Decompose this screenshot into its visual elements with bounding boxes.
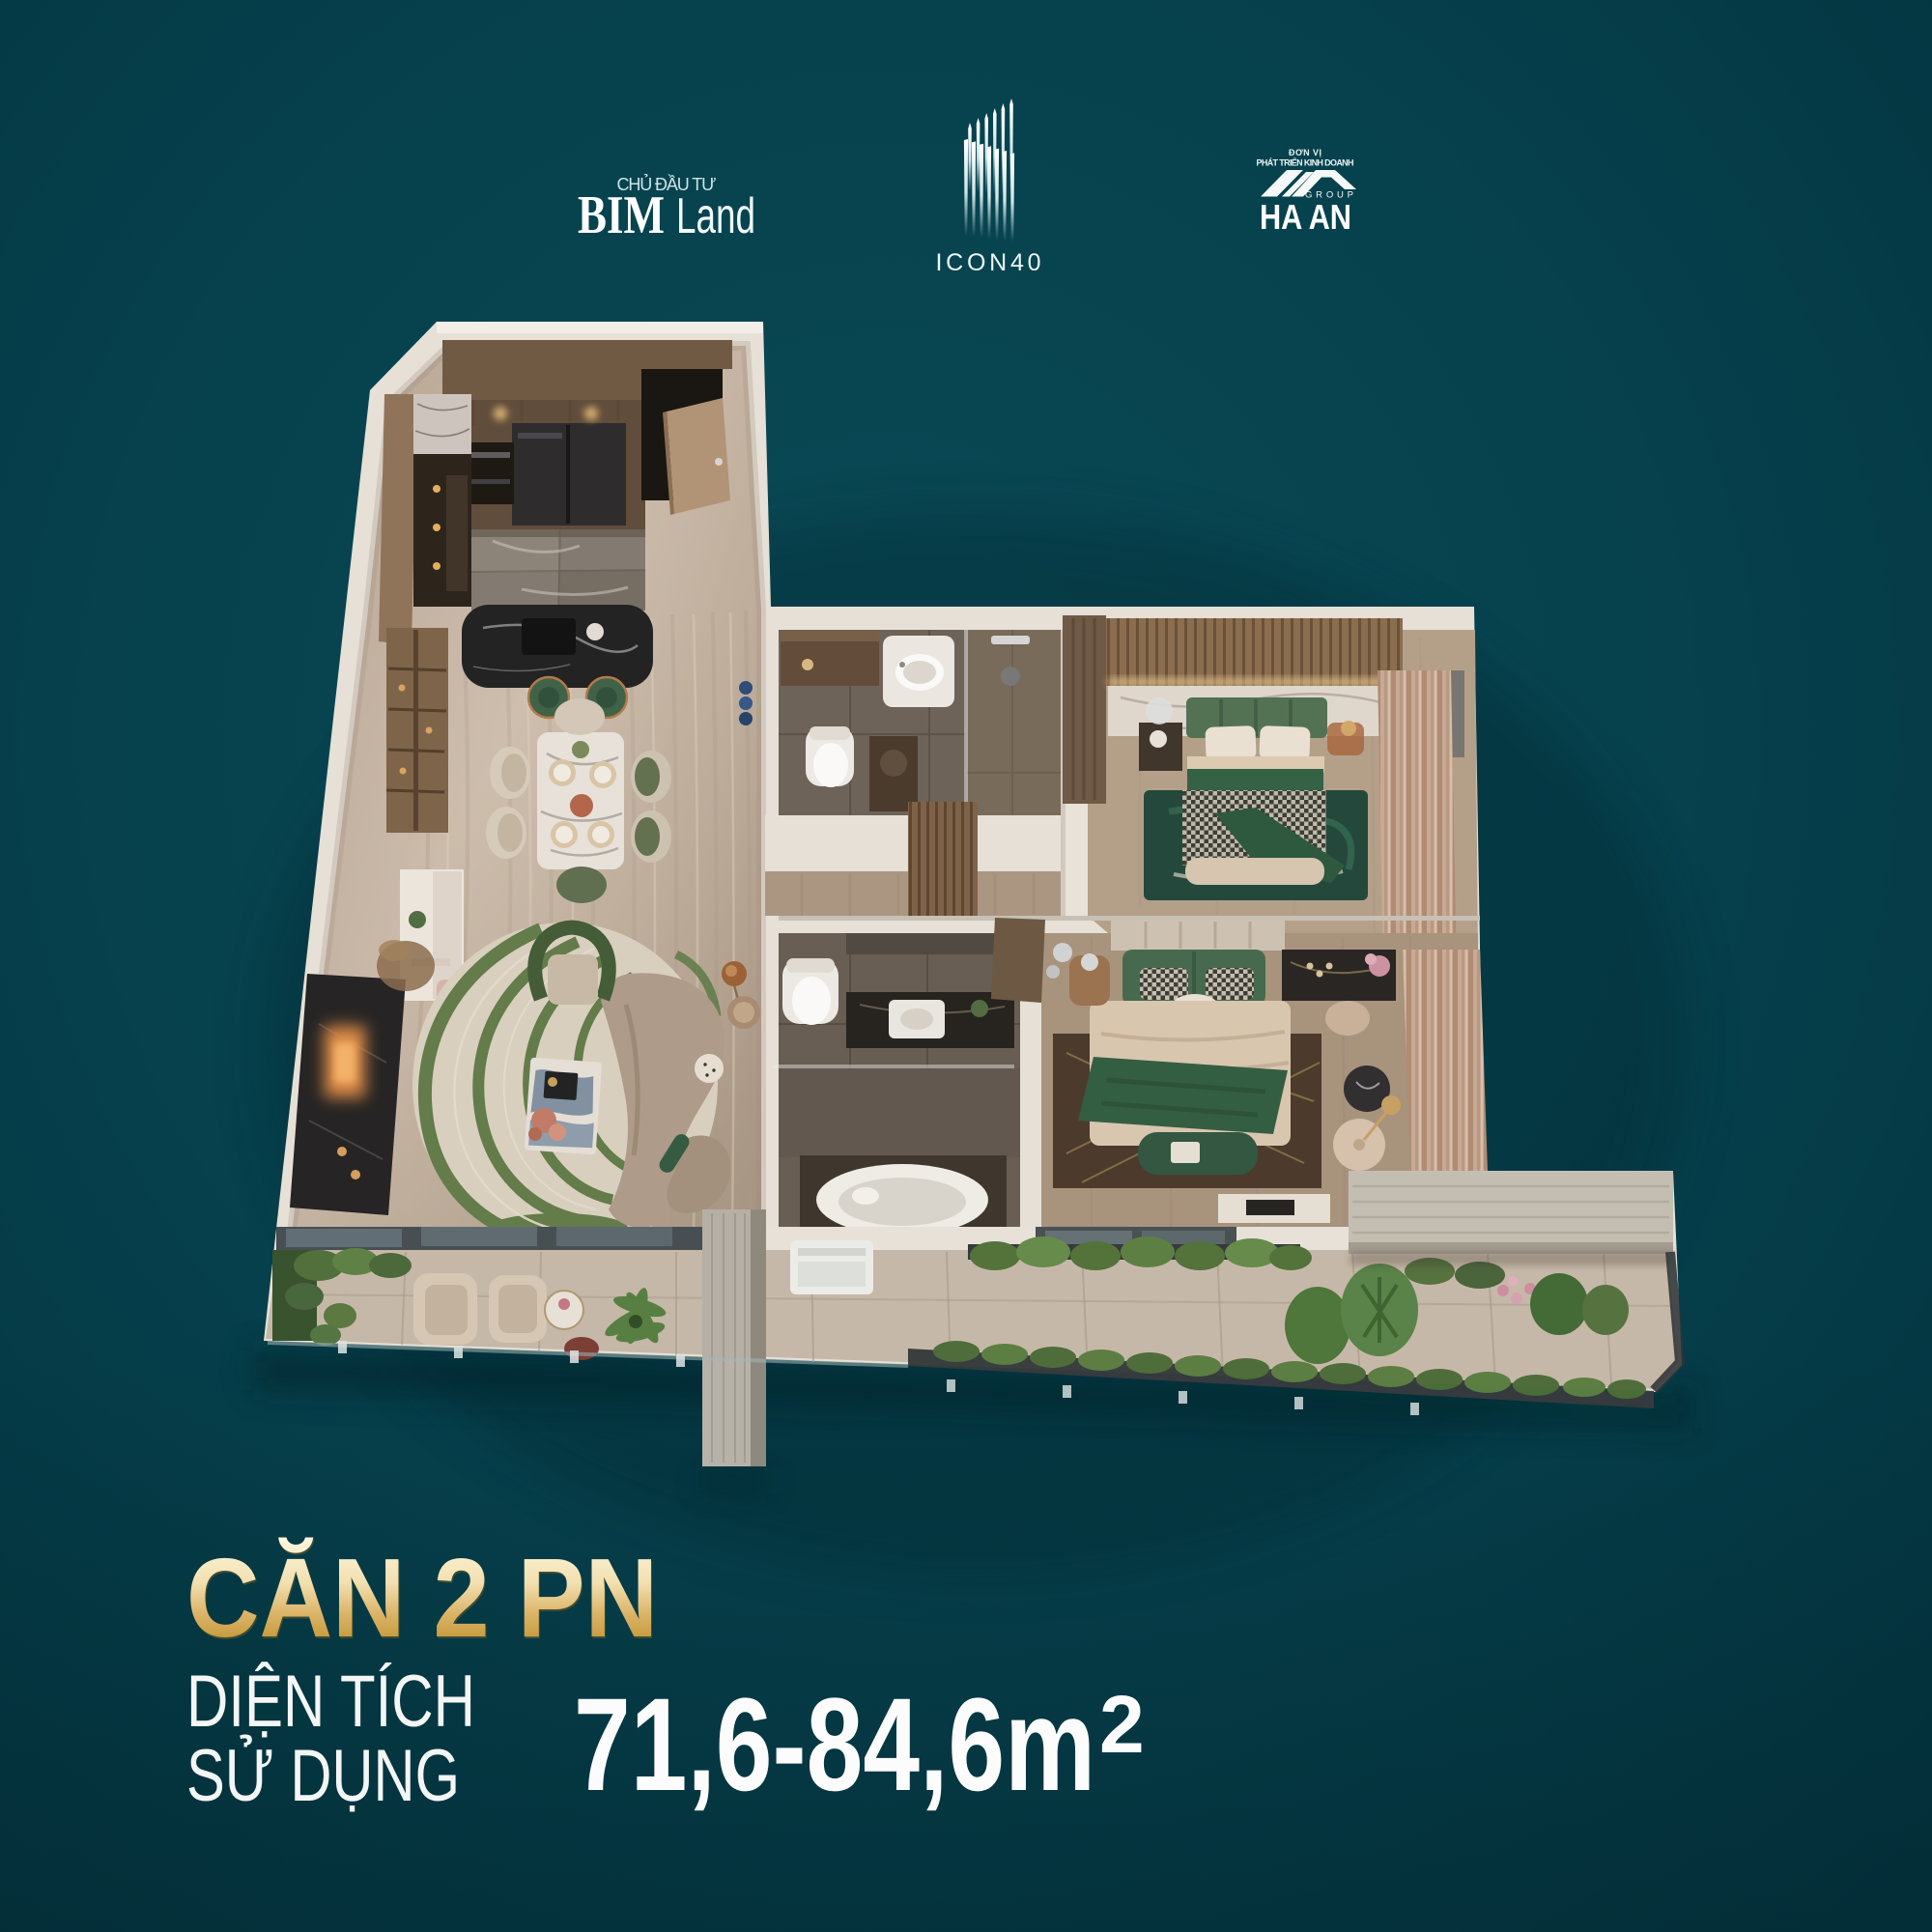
svg-text:Land: Land <box>676 188 755 244</box>
svg-text:ĐƠN VỊ: ĐƠN VỊ <box>1289 148 1321 157</box>
svg-text:SỬ DỤNG: SỬ DỤNG <box>186 1735 460 1817</box>
svg-text:BIM: BIM <box>578 185 665 245</box>
svg-text:CĂN 2 PN: CĂN 2 PN <box>186 1535 658 1661</box>
svg-text:HA AN: HA AN <box>1260 197 1351 237</box>
svg-text:2: 2 <box>1099 1679 1145 1770</box>
svg-text:PHÁT TRIỂN KINH DOANH: PHÁT TRIỂN KINH DOANH <box>1257 157 1354 168</box>
svg-text:71,6-84,6m: 71,6-84,6m <box>574 1671 1095 1819</box>
svg-text:DIỆN TÍCH: DIỆN TÍCH <box>186 1661 475 1743</box>
